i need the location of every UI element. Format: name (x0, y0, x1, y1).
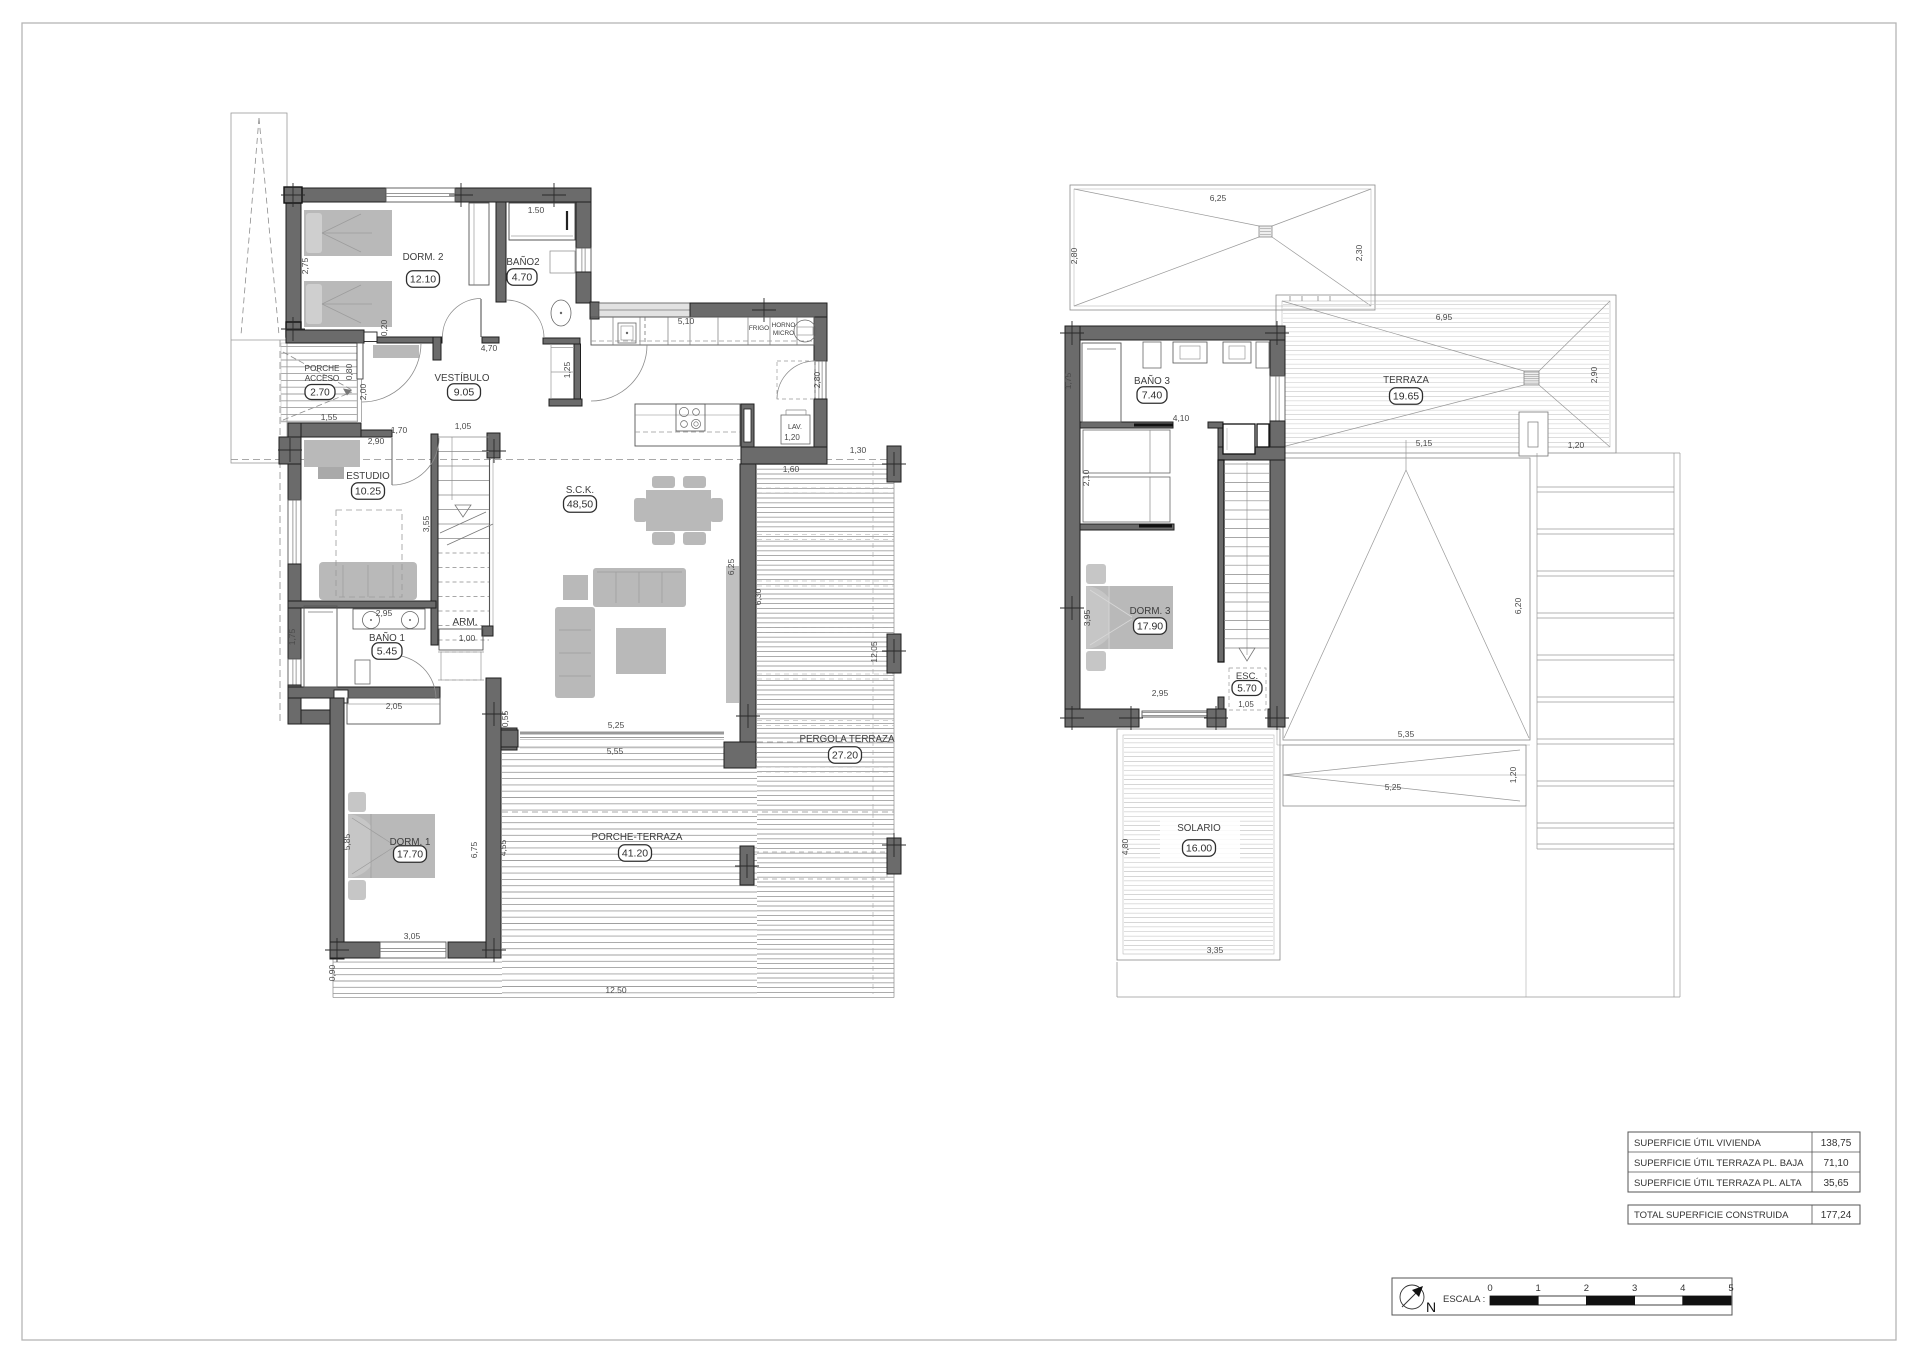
svg-text:2,90: 2,90 (368, 436, 385, 446)
svg-text:3,55: 3,55 (421, 515, 431, 532)
svg-text:1.50: 1.50 (528, 205, 545, 215)
svg-text:71,10: 71,10 (1823, 1158, 1848, 1169)
svg-text:TOTAL SUPERFICIE CONSTRUIDA: TOTAL SUPERFICIE CONSTRUIDA (1634, 1210, 1789, 1221)
svg-text:2,00: 2,00 (358, 383, 368, 400)
svg-text:4,10: 4,10 (1173, 413, 1190, 423)
svg-text:5,25: 5,25 (1385, 782, 1402, 792)
svg-text:1,20: 1,20 (1568, 440, 1585, 450)
svg-text:5.45: 5.45 (377, 646, 398, 658)
svg-text:1,20: 1,20 (784, 433, 800, 442)
svg-text:12.50: 12.50 (605, 985, 627, 995)
svg-text:1,20: 1,20 (1508, 766, 1518, 783)
svg-text:2.70: 2.70 (310, 387, 330, 398)
svg-text:10.25: 10.25 (355, 486, 381, 498)
svg-text:6,75: 6,75 (469, 841, 479, 858)
svg-text:4,70: 4,70 (481, 343, 498, 353)
svg-text:PORCHE: PORCHE (304, 364, 340, 373)
svg-text:27.20: 27.20 (832, 750, 858, 762)
svg-text:5,10: 5,10 (678, 316, 695, 326)
svg-text:2,10: 2,10 (1081, 469, 1091, 486)
svg-text:FRIGO: FRIGO (749, 325, 769, 332)
svg-text:0,55: 0,55 (500, 710, 510, 727)
svg-text:4: 4 (1680, 1283, 1685, 1294)
svg-text:4.70: 4.70 (512, 272, 533, 284)
svg-text:5,35: 5,35 (1398, 729, 1415, 739)
svg-text:0,90: 0,90 (327, 964, 337, 981)
svg-text:3,95: 3,95 (1082, 609, 1092, 626)
svg-text:2,80: 2,80 (812, 371, 822, 388)
svg-text:1,30: 1,30 (850, 445, 867, 455)
svg-text:2,95: 2,95 (1152, 688, 1169, 698)
svg-text:1,00: 1,00 (459, 633, 476, 643)
svg-text:0,20: 0,20 (379, 319, 389, 336)
svg-text:0: 0 (1487, 1283, 1492, 1294)
svg-text:48,50: 48,50 (567, 499, 593, 511)
svg-text:41.20: 41.20 (622, 848, 648, 860)
svg-text:1,70: 1,70 (391, 425, 408, 435)
svg-text:16.00: 16.00 (1186, 843, 1212, 855)
svg-text:PORCHE-TERRAZA: PORCHE-TERRAZA (592, 832, 683, 843)
svg-text:N: N (1426, 1299, 1436, 1315)
svg-text:SUPERFICIE ÚTIL TERRAZA PL. BA: SUPERFICIE ÚTIL TERRAZA PL. BAJA (1634, 1158, 1804, 1169)
svg-text:0,80: 0,80 (344, 363, 354, 380)
svg-text:VESTÍBULO: VESTÍBULO (435, 373, 490, 384)
svg-text:6,30: 6,30 (753, 588, 763, 605)
svg-text:6,20: 6,20 (1513, 597, 1523, 614)
svg-text:S.C.K.: S.C.K. (566, 485, 594, 496)
svg-text:HORNO: HORNO (772, 322, 796, 329)
svg-text:9.05: 9.05 (454, 387, 475, 399)
svg-text:DORM. 2: DORM. 2 (403, 252, 444, 263)
svg-text:4,80: 4,80 (1120, 838, 1130, 855)
svg-text:ESCALA :: ESCALA : (1443, 1294, 1485, 1305)
svg-text:5: 5 (1728, 1283, 1733, 1294)
svg-text:6,25: 6,25 (1210, 193, 1227, 203)
svg-text:5,85: 5,85 (342, 833, 352, 850)
svg-text:4,55: 4,55 (498, 839, 508, 856)
svg-text:3: 3 (1632, 1283, 1637, 1294)
svg-text:2,95: 2,95 (376, 608, 393, 618)
svg-text:BAÑO 3: BAÑO 3 (1134, 376, 1170, 387)
svg-text:5,25: 5,25 (608, 720, 625, 730)
svg-text:2,90: 2,90 (1589, 366, 1599, 383)
svg-text:2,30: 2,30 (1354, 244, 1364, 261)
svg-text:12.10: 12.10 (410, 274, 436, 286)
svg-text:1,25: 1,25 (562, 361, 572, 378)
svg-text:17.90: 17.90 (1137, 621, 1163, 633)
svg-text:5,55: 5,55 (607, 746, 624, 756)
svg-text:SOLARIO: SOLARIO (1177, 823, 1221, 834)
svg-text:ACCESO: ACCESO (305, 374, 340, 383)
svg-text:SUPERFICIE ÚTIL VIVIENDA: SUPERFICIE ÚTIL VIVIENDA (1634, 1138, 1762, 1149)
svg-text:5,15: 5,15 (1416, 438, 1433, 448)
svg-text:1: 1 (1536, 1283, 1541, 1294)
svg-text:1,05: 1,05 (455, 421, 472, 431)
svg-text:2,80: 2,80 (1069, 247, 1079, 264)
svg-text:6,95: 6,95 (1436, 312, 1453, 322)
svg-text:12,05: 12,05 (869, 641, 879, 663)
svg-text:35,65: 35,65 (1823, 1178, 1848, 1189)
svg-text:3,35: 3,35 (1207, 945, 1224, 955)
svg-text:1,55: 1,55 (321, 412, 338, 422)
svg-text:17.70: 17.70 (397, 849, 423, 861)
svg-text:177,24: 177,24 (1821, 1210, 1852, 1221)
svg-text:1,75: 1,75 (1063, 372, 1073, 389)
svg-text:19.65: 19.65 (1393, 391, 1419, 403)
svg-text:6,25: 6,25 (726, 558, 736, 575)
svg-text:3,05: 3,05 (404, 931, 421, 941)
svg-text:PERGOLA TERRAZA: PERGOLA TERRAZA (799, 734, 895, 745)
svg-text:1,75: 1,75 (287, 628, 297, 645)
svg-text:7.40: 7.40 (1142, 390, 1163, 402)
svg-text:138,75: 138,75 (1821, 1138, 1852, 1149)
svg-text:TERRAZA: TERRAZA (1383, 375, 1429, 386)
svg-text:BAÑO2: BAÑO2 (506, 257, 539, 268)
svg-text:MICRO: MICRO (773, 330, 794, 337)
svg-text:ARM.: ARM. (453, 617, 478, 628)
svg-text:1,60: 1,60 (783, 464, 800, 474)
svg-text:5.70: 5.70 (1237, 683, 1257, 694)
svg-text:2,75: 2,75 (300, 257, 310, 274)
svg-text:SUPERFICIE ÚTIL TERRAZA PL. AL: SUPERFICIE ÚTIL TERRAZA PL. ALTA (1634, 1178, 1802, 1189)
svg-text:LAV.: LAV. (788, 424, 802, 431)
svg-text:DORM. 3: DORM. 3 (1130, 606, 1171, 617)
svg-text:ESTUDIO: ESTUDIO (346, 471, 390, 482)
svg-text:2,05: 2,05 (386, 701, 403, 711)
svg-text:1,05: 1,05 (1238, 700, 1254, 709)
svg-text:2: 2 (1584, 1283, 1589, 1294)
